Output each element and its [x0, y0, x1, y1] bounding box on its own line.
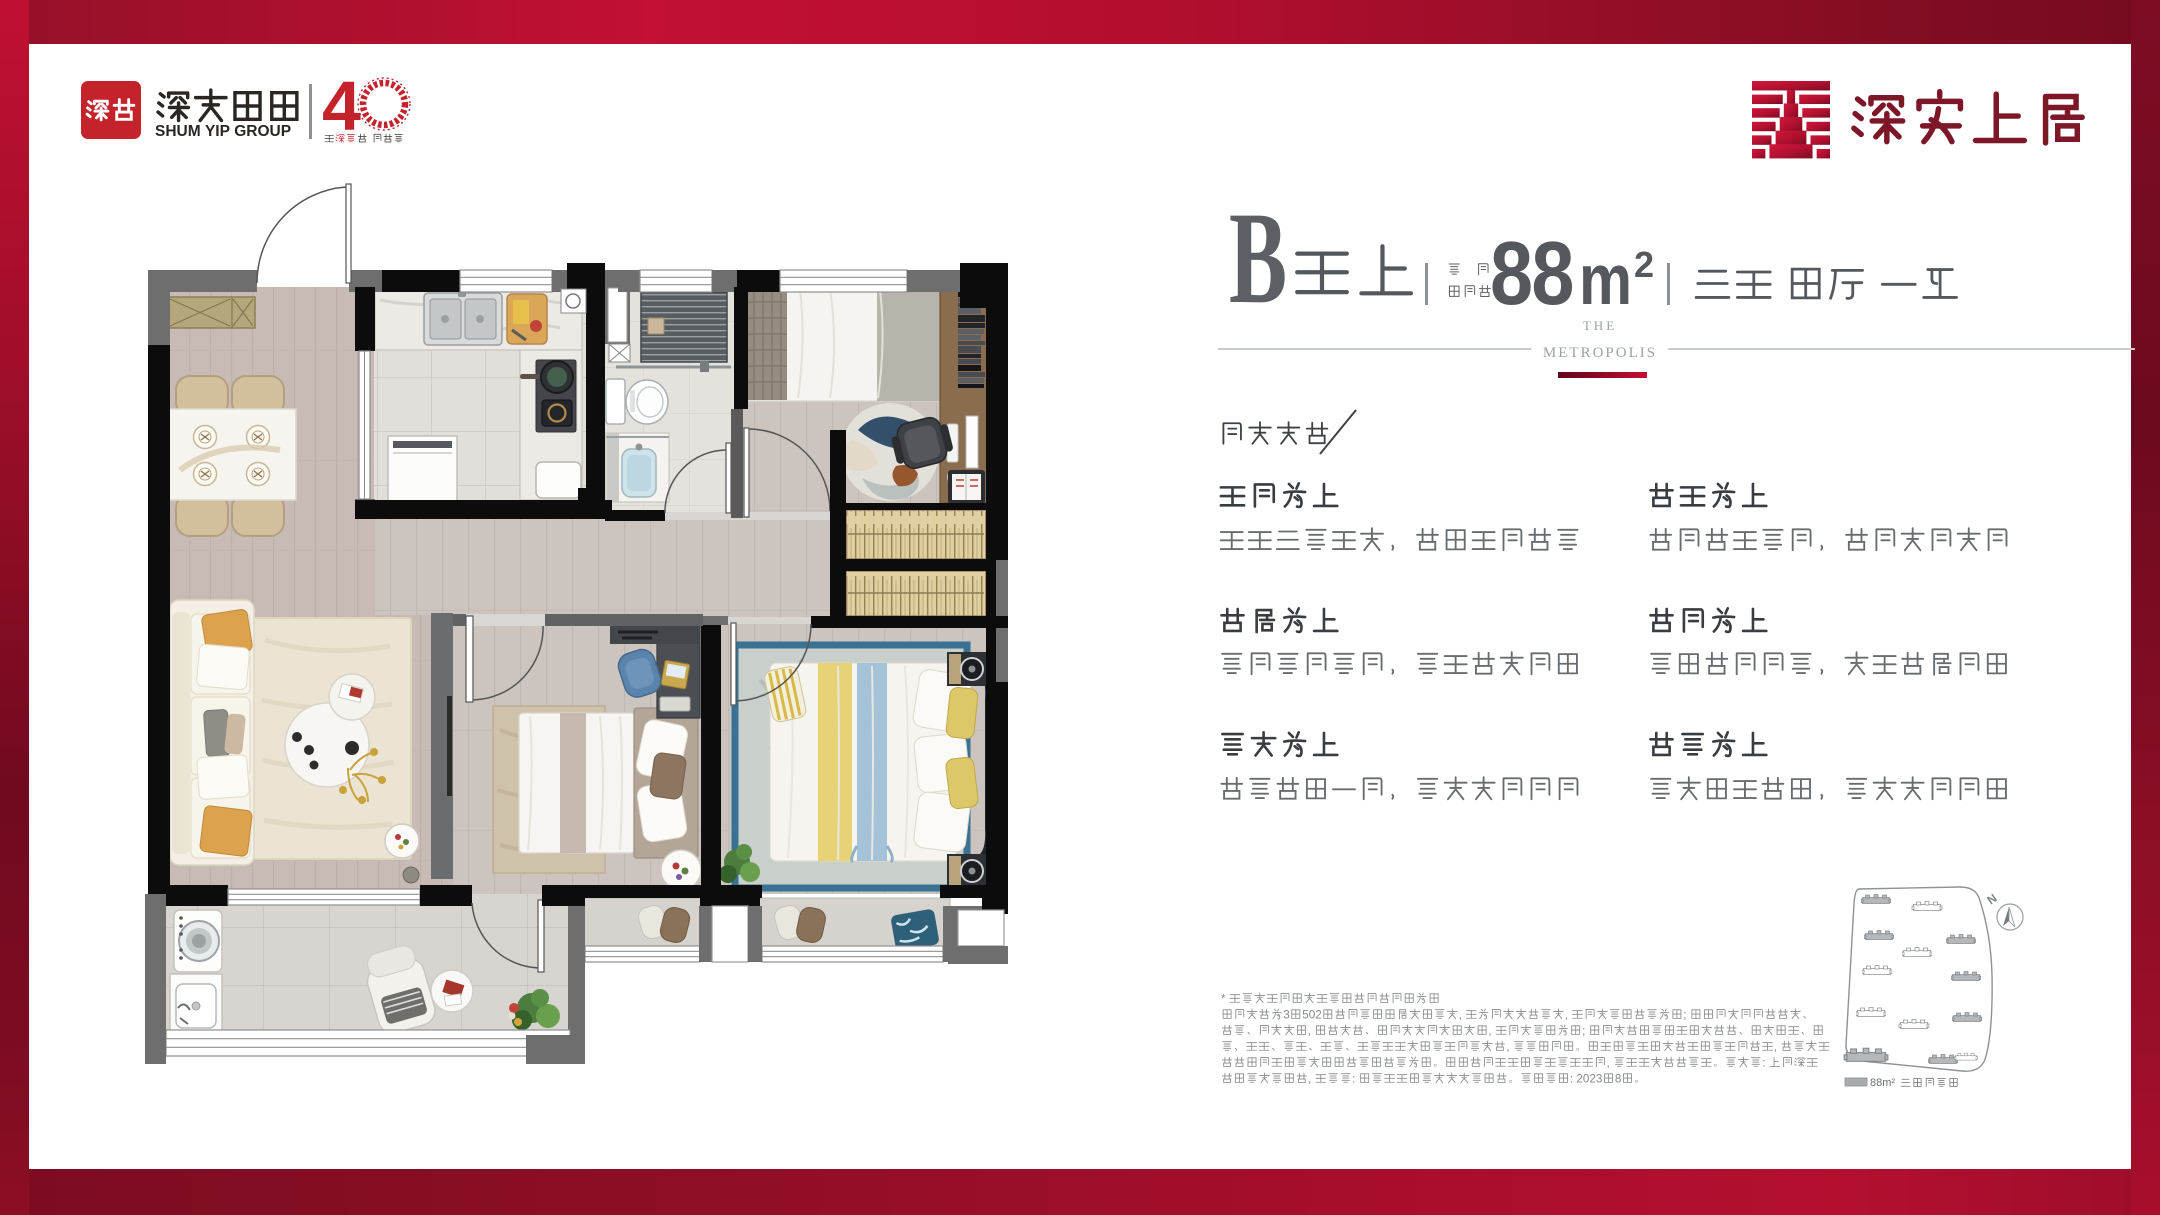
svg-text:;: ; — [1683, 1009, 1686, 1022]
svg-text:,: , — [1459, 1009, 1462, 1022]
svg-text:,: , — [1488, 1025, 1491, 1038]
svg-text:,: , — [1506, 1041, 1509, 1054]
svg-text::: : — [1762, 1057, 1765, 1070]
svg-text:,: , — [1308, 1073, 1311, 1086]
svg-text:3: 3 — [1283, 1009, 1290, 1022]
svg-text::: : — [1352, 1073, 1355, 1086]
svg-text:,: , — [1308, 1025, 1311, 1038]
svg-text:;: ; — [1582, 1025, 1585, 1038]
svg-text:*: * — [1221, 993, 1226, 1006]
svg-text:502: 502 — [1302, 1009, 1322, 1022]
svg-text:m: m — [1579, 240, 1632, 313]
svg-text:2: 2 — [1634, 244, 1654, 285]
svg-text:8: 8 — [1615, 1073, 1622, 1086]
svg-text:N: N — [1984, 891, 1999, 907]
svg-text:: 2023: : 2023 — [1570, 1073, 1603, 1086]
svg-text:,: , — [1565, 1009, 1568, 1022]
svg-text:88: 88 — [1490, 228, 1573, 313]
svg-text:,: , — [1774, 1041, 1777, 1054]
svg-text:B: B — [1229, 205, 1287, 315]
svg-text:88m²: 88m² — [1870, 1077, 1895, 1089]
svg-text:,: , — [1607, 1057, 1610, 1070]
